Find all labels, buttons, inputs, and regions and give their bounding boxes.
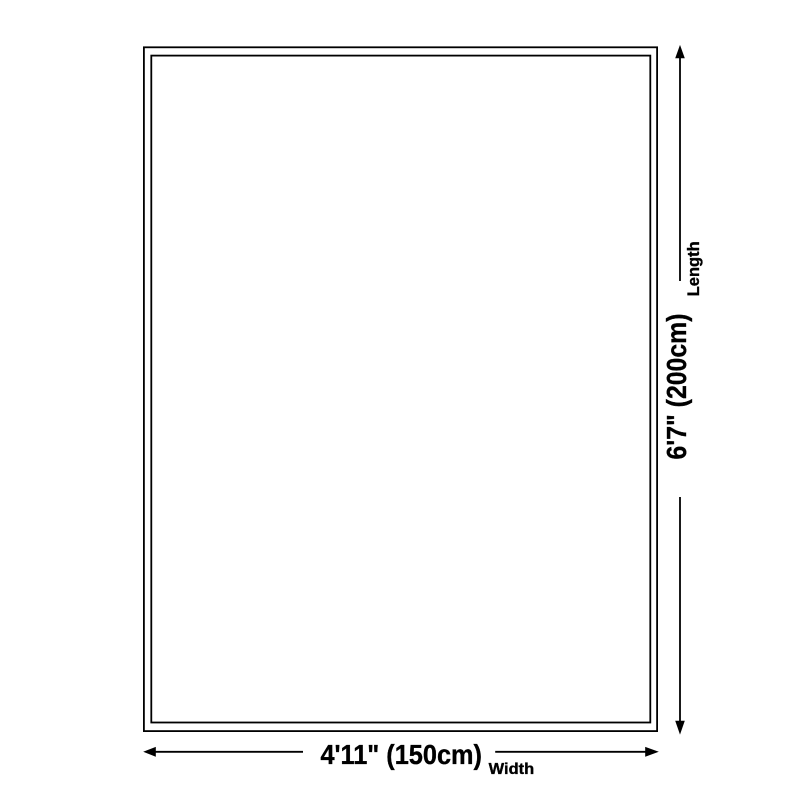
svg-text:Width: Width <box>489 761 535 778</box>
svg-text:Length: Length <box>685 241 703 296</box>
svg-text:4'11" (150cm): 4'11" (150cm) <box>320 739 482 770</box>
svg-text:6'7" (200cm): 6'7" (200cm) <box>661 314 692 460</box>
